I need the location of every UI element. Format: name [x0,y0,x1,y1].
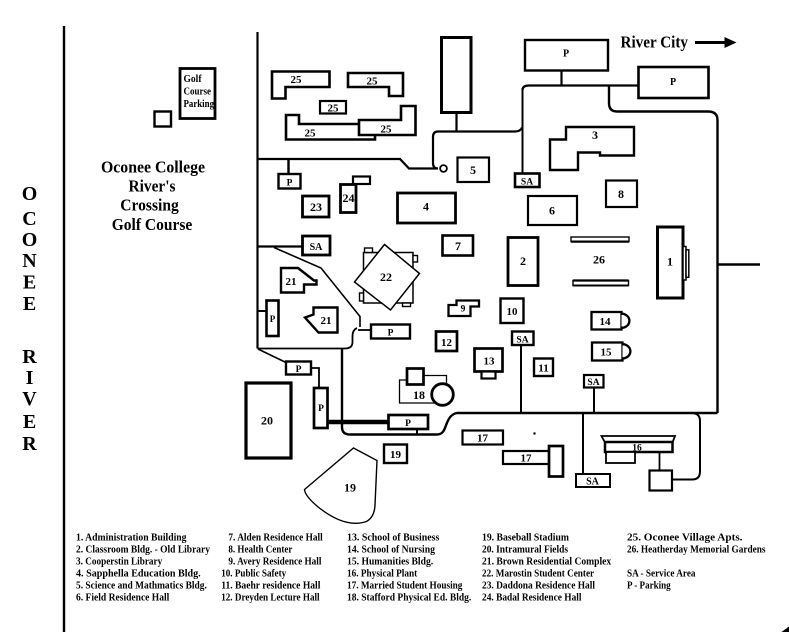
svg-text:20. Intramural Fields: 20. Intramural Fields [482,545,568,556]
svg-text:18: 18 [413,388,425,402]
svg-text:18. Stafford Physical Ed. Bldg: 18. Stafford Physical Ed. Bldg. [347,593,472,604]
svg-text:Course: Course [184,87,212,98]
svg-text:13: 13 [484,356,496,368]
svg-text:13. School of Business: 13. School of Business [347,533,439,544]
svg-text:25: 25 [367,76,379,88]
svg-text:20: 20 [261,414,273,428]
svg-text:11: 11 [538,363,548,375]
svg-text:2: 2 [520,254,526,268]
svg-text:R: R [22,346,37,368]
svg-text:4: 4 [423,200,429,214]
svg-text:8: 8 [618,187,624,201]
svg-text:6. Field Residence Hall: 6. Field Residence Hall [76,593,169,604]
svg-text:P: P [388,329,394,339]
svg-text:25: 25 [291,74,303,86]
svg-text:P: P [318,404,324,414]
svg-text:E: E [23,293,36,315]
svg-text:25: 25 [305,128,317,140]
svg-text:24. Badal Residence Hall: 24. Badal Residence Hall [482,593,582,604]
svg-text:3: 3 [592,128,598,142]
svg-text:25: 25 [381,124,393,136]
svg-text:26: 26 [593,253,605,267]
svg-text:17: 17 [477,433,489,445]
svg-text:23. Daddona Residence Hall: 23. Daddona Residence Hall [482,581,595,592]
svg-text:9: 9 [461,305,466,315]
svg-text:SA: SA [586,477,600,488]
svg-text:R: R [22,433,37,455]
svg-text:SA: SA [310,242,324,253]
svg-text:P: P [270,314,276,324]
svg-text:Crossing: Crossing [120,196,179,215]
svg-text:8. Health Center: 8. Health Center [228,545,292,556]
svg-text:E: E [23,272,36,294]
svg-text:P - Parking: P - Parking [627,581,671,592]
svg-text:V: V [22,388,37,410]
svg-text:5. Science and Mathmatics Bldg: 5. Science and Mathmatics Bldg. [76,581,207,592]
svg-text:1: 1 [667,255,673,269]
svg-text:3. Cooperstin Library: 3. Cooperstin Library [76,557,163,568]
svg-text:P: P [296,365,302,375]
svg-text:24: 24 [343,191,355,205]
svg-text:O: O [22,229,38,251]
svg-text:Oconee College: Oconee College [101,158,205,177]
svg-text:19. Baseball Stadium: 19. Baseball Stadium [482,533,569,544]
svg-text:21: 21 [286,276,297,288]
svg-text:12. Dreyden Lecture Hall: 12. Dreyden Lecture Hall [221,593,320,604]
svg-text:7. Alden Residence Hall: 7. Alden Residence Hall [228,533,322,544]
svg-text:Golf: Golf [184,74,203,85]
svg-text:SA: SA [587,378,599,388]
svg-text:21: 21 [321,315,332,327]
svg-text:14: 14 [600,316,612,328]
svg-text:SA: SA [521,178,533,188]
svg-text:22: 22 [380,270,392,284]
svg-text:25: 25 [328,103,340,115]
svg-text:6: 6 [549,204,555,218]
svg-text:25. Oconee Village Apts.: 25. Oconee Village Apts. [627,533,743,544]
svg-text:Golf Course: Golf Course [112,215,193,234]
svg-text:9. Avery Residence Hall: 9. Avery Residence Hall [228,557,321,568]
svg-text:N: N [22,250,37,272]
svg-text:17. Married Student Housing: 17. Married Student Housing [347,581,463,592]
svg-text:19: 19 [344,481,356,495]
svg-text:19: 19 [390,449,402,461]
svg-text:7: 7 [455,239,461,253]
svg-text:P: P [670,77,676,88]
svg-text:P: P [563,49,569,60]
svg-text:SA: SA [516,336,528,346]
svg-text:10. Public Safety: 10. Public Safety [221,569,287,580]
svg-text:21. Brown Residential Complex: 21. Brown Residential Complex [482,557,612,568]
svg-text:26. Heatherday Memorial Garden: 26. Heatherday Memorial Gardens [627,545,766,556]
svg-text:5: 5 [470,163,476,177]
svg-text:15: 15 [601,347,613,359]
svg-text:River's: River's [129,177,177,196]
svg-text:1. Administration Building: 1. Administration Building [76,533,187,544]
svg-text:SA - Service Area: SA - Service Area [627,569,696,580]
svg-text:E: E [23,411,36,433]
svg-text:22. Marostin Student Center: 22. Marostin Student Center [482,569,594,580]
svg-text:12: 12 [441,337,453,349]
svg-text:P: P [287,179,293,189]
svg-text:C: C [22,208,36,230]
svg-text:Parking: Parking [184,99,215,110]
svg-text:11. Baehr residence Hall: 11. Baehr residence Hall [221,581,320,592]
svg-text:P: P [405,419,411,429]
svg-text:15. Humanities Bldg.: 15. Humanities Bldg. [347,557,434,568]
svg-text:2. Classroom Bldg. - Old Libra: 2. Classroom Bldg. - Old Library [76,545,211,556]
svg-text:16. Physical Plant: 16. Physical Plant [347,569,418,580]
svg-text:10: 10 [507,306,519,318]
svg-text:17: 17 [521,453,533,465]
svg-text:I: I [26,367,34,389]
svg-text:River City: River City [621,33,689,52]
svg-text:O: O [22,183,38,205]
svg-text:23: 23 [310,200,322,214]
svg-text:4. Sapphella Education Bldg.: 4. Sapphella Education Bldg. [76,569,201,580]
svg-text:14. School of Nursing: 14. School of Nursing [347,545,436,556]
